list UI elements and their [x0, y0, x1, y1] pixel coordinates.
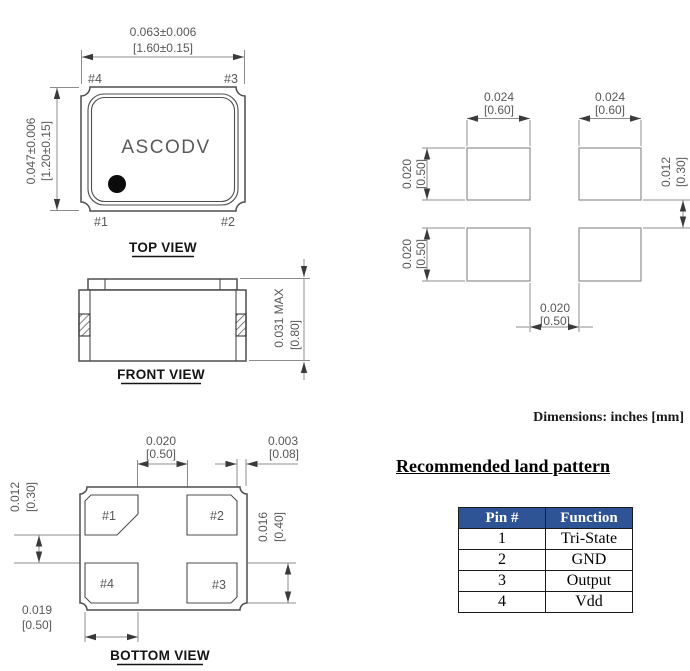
land-pad-height-inches-bottom: 0.020	[400, 239, 414, 269]
top-view-pin1-label: #1	[94, 215, 108, 229]
bottom-view-edge-gap-mm: [0.08]	[269, 447, 299, 461]
front-view-height-inches: 0.031 MAX	[272, 288, 286, 347]
right-castellation-pad	[236, 314, 246, 336]
pin-number-cell: 3	[459, 571, 546, 592]
land-pattern-drawing: 0.024 [0.60] 0.024 [0.60] 0.020 [0.50] 0…	[400, 90, 690, 332]
bottom-view-pad-gap-mm: [0.50]	[146, 447, 176, 461]
datasheet-package-drawing-page: 0.063±0.006 [1.60±0.15] 0.047±0.006 [1.2…	[0, 0, 690, 671]
land-col-gap-mm: [0.50]	[540, 314, 570, 328]
pin-column-header: Pin #	[459, 508, 546, 529]
pin-table-row: 2 GND	[459, 550, 633, 571]
top-view-title: TOP VIEW	[129, 240, 197, 255]
pin1-indicator-dot	[108, 175, 126, 193]
land-pad-width-mm-left: [0.60]	[484, 103, 514, 117]
front-view-height-mm: [0.80]	[288, 320, 302, 350]
top-view-pin2-label: #2	[221, 215, 235, 229]
front-view-drawing: 0.031 MAX [0.80] FRONT VIEW	[79, 259, 310, 384]
bottom-view-pad-width-mm: [0.50]	[22, 618, 52, 632]
bottom-pad-3-label: #3	[212, 578, 226, 592]
pin-table-header-row: Pin # Function	[459, 508, 633, 529]
pin-number-cell: 1	[459, 529, 546, 550]
land-pad-bottom-left	[467, 228, 530, 281]
package-lid-side	[88, 279, 237, 290]
pin-function-cell: Vdd	[546, 592, 633, 613]
land-pad-height-mm-bottom: [0.50]	[414, 239, 428, 269]
front-view-title: FRONT VIEW	[117, 367, 205, 382]
land-row-gap-mm: [0.30]	[674, 157, 688, 187]
bottom-view-row-gap-mm: [0.30]	[24, 482, 38, 512]
bottom-view-drawing: 0.020 [0.50] 0.003 [0.08] 0.012 [0.30] 0…	[8, 434, 299, 665]
pin-function-cell: Tri-State	[546, 529, 633, 550]
land-pad-height-inches-top: 0.020	[400, 159, 414, 189]
bottom-view-pad-width-inches: 0.019	[22, 603, 52, 617]
pin-table-row: 3 Output	[459, 571, 633, 592]
bottom-pad-2-label: #2	[210, 509, 224, 523]
land-pattern-heading: Recommended land pattern	[396, 456, 610, 477]
land-pad-width-inches-left: 0.024	[484, 90, 514, 104]
pin-function-table: Pin # Function 1 Tri-State 2 GND 3 Outpu…	[458, 507, 633, 613]
units-note: Dimensions: inches [mm]	[400, 410, 684, 426]
top-view-height-mm: [1.20±0.15]	[39, 121, 53, 181]
bottom-view-pad-height-mm: [0.40]	[272, 512, 286, 542]
pin-number-cell: 4	[459, 592, 546, 613]
pin-function-cell: Output	[546, 571, 633, 592]
land-pad-bottom-right	[579, 228, 641, 281]
bottom-view-pad-gap-inches: 0.020	[146, 434, 176, 448]
pin-number-cell: 2	[459, 550, 546, 571]
land-col-gap-inches: 0.020	[540, 301, 570, 315]
top-view-height-inches: 0.047±0.006	[24, 117, 38, 184]
top-view-pin3-label: #3	[224, 72, 238, 86]
top-view-drawing: 0.063±0.006 [1.60±0.15] 0.047±0.006 [1.2…	[24, 25, 245, 257]
left-castellation-pad	[79, 314, 90, 336]
pin-table-row: 4 Vdd	[459, 592, 633, 613]
land-pad-height-mm-top: [0.50]	[414, 159, 428, 189]
bottom-pad-1-label: #1	[102, 509, 116, 523]
land-pad-top-left	[467, 148, 530, 200]
bottom-view-row-gap-inches: 0.012	[8, 482, 22, 512]
bottom-view-edge-gap-inches: 0.003	[268, 434, 298, 448]
land-row-gap-inches: 0.012	[659, 157, 673, 187]
function-column-header: Function	[546, 508, 633, 529]
part-marking: ASCODV	[121, 137, 210, 158]
pin-function-cell: GND	[546, 550, 633, 571]
land-pad-width-inches-right: 0.024	[595, 90, 625, 104]
top-view-pin4-label: #4	[88, 72, 102, 86]
bottom-view-pad-height-inches: 0.016	[256, 512, 270, 542]
land-pad-width-mm-right: [0.60]	[595, 103, 625, 117]
package-body-side	[79, 290, 246, 361]
land-pad-top-right	[579, 148, 641, 200]
pin-table-row: 1 Tri-State	[459, 529, 633, 550]
top-view-width-inches: 0.063±0.006	[130, 25, 197, 39]
bottom-view-title: BOTTOM VIEW	[110, 648, 210, 663]
bottom-pad-4-label: #4	[100, 577, 114, 591]
top-view-width-mm: [1.60±0.15]	[133, 41, 193, 55]
